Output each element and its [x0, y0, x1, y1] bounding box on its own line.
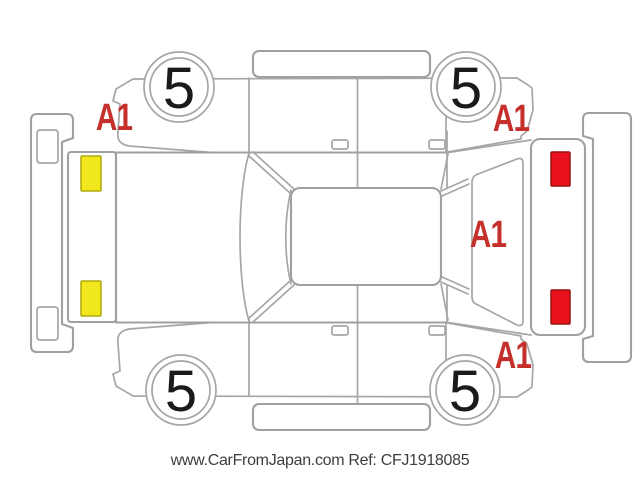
- upper-rear-door-handle: [429, 140, 445, 149]
- wheel-upper-rear: 5: [431, 52, 501, 122]
- hood-rear-arc: [240, 153, 249, 321]
- rear-assembly: [531, 113, 631, 362]
- watermark-caption: www.CarFromJapan.com Ref: CFJ1918085: [0, 452, 640, 470]
- tire-grade: 5: [165, 359, 197, 424]
- damage-mark-upper-front-fender: A1: [96, 97, 132, 139]
- top-view: [116, 131, 531, 335]
- lower-door-lines: [249, 285, 446, 404]
- car-unfolded-diagram: 5 5 5 5 A1 A1 A1 A1: [0, 0, 640, 480]
- rear-c-pillars: [441, 154, 469, 320]
- front-bumper-lower-lamp: [37, 307, 58, 340]
- upper-front-door-handle: [332, 140, 348, 149]
- rear-bumper: [583, 113, 631, 362]
- upper-side-sill: [253, 51, 430, 77]
- tire-grade: 5: [450, 56, 482, 121]
- wheel-upper-front: 5: [144, 52, 214, 122]
- vehicle-condition-diagram: 5 5 5 5 A1 A1 A1 A1: [0, 0, 640, 480]
- taillight-upper: [551, 152, 570, 186]
- roof-panel: [291, 188, 441, 285]
- lower-rear-door-handle: [429, 326, 445, 335]
- lower-front-door-handle: [332, 326, 348, 335]
- tire-grade: 5: [449, 359, 481, 424]
- headlight-upper: [81, 156, 101, 191]
- upper-door-lines: [249, 77, 446, 188]
- front-bumper-upper-lamp: [37, 130, 58, 163]
- tire-grade: 5: [163, 56, 195, 121]
- wheel-lower-front: 5: [146, 355, 216, 425]
- windshield-a-pillars: [249, 152, 294, 322]
- lower-side-sill: [253, 404, 430, 430]
- damage-mark-tailgate: A1: [470, 214, 506, 256]
- front-assembly: [31, 114, 116, 352]
- headlight-lower: [81, 281, 101, 316]
- damage-marks: A1 A1 A1 A1: [96, 97, 531, 377]
- damage-mark-upper-rear-quarter: A1: [493, 98, 529, 140]
- wheel-lower-rear: 5: [430, 355, 500, 425]
- taillight-lower: [551, 290, 570, 324]
- damage-mark-lower-rear-quarter: A1: [495, 335, 531, 377]
